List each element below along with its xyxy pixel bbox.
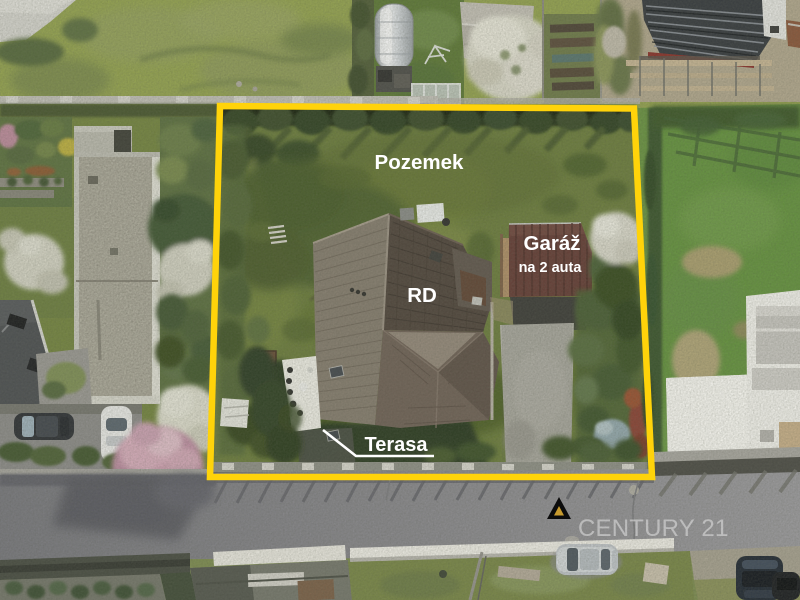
- svg-text:RD: RD: [407, 284, 437, 307]
- svg-text:Terasa: Terasa: [364, 434, 428, 456]
- svg-text:CENTURY 21: CENTURY 21: [578, 515, 729, 542]
- svg-text:Garáž: Garáž: [524, 232, 581, 255]
- svg-text:Pozemek: Pozemek: [375, 151, 464, 174]
- svg-text:na 2 auta: na 2 auta: [519, 260, 583, 276]
